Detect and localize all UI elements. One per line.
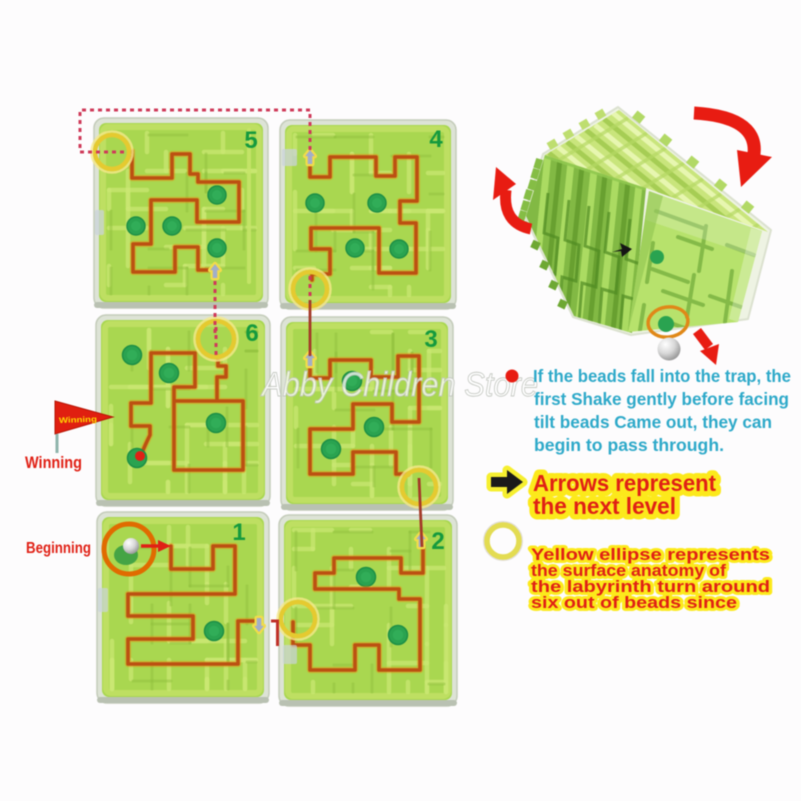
svg-text:begin to pass through.: begin to pass through. bbox=[534, 435, 724, 455]
svg-text:Winning: Winning bbox=[25, 453, 82, 472]
svg-text:1: 1 bbox=[232, 519, 245, 546]
svg-text:5: 5 bbox=[244, 127, 257, 154]
svg-text:4: 4 bbox=[429, 126, 443, 153]
svg-text:Winning: Winning bbox=[59, 415, 97, 425]
svg-text:the next level: the next level bbox=[533, 493, 676, 519]
svg-text:Abby Children Store: Abby Children Store bbox=[260, 366, 538, 404]
svg-text:3: 3 bbox=[424, 326, 437, 353]
svg-text:six out of beads since: six out of beads since bbox=[531, 593, 737, 612]
svg-text:tilt beads Came out, they can: tilt beads Came out, they can bbox=[534, 412, 772, 432]
svg-text:2: 2 bbox=[431, 528, 444, 555]
svg-text:first Shake gently before faci: first Shake gently before facing bbox=[534, 389, 789, 409]
svg-text:If the beads fall into the tra: If the beads fall into the trap, the bbox=[533, 366, 791, 386]
svg-text:Beginning: Beginning bbox=[26, 540, 91, 557]
svg-text:6: 6 bbox=[245, 320, 258, 347]
